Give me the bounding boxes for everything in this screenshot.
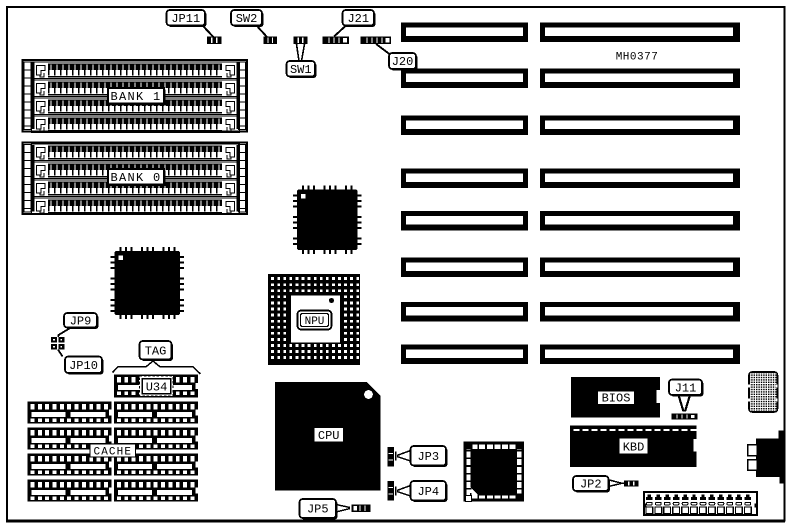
svg-text:SW2: SW2 — [236, 12, 258, 26]
svg-text:CPU: CPU — [318, 429, 340, 443]
svg-text:JP11: JP11 — [171, 12, 200, 26]
svg-text:BANK 0: BANK 0 — [110, 171, 161, 185]
svg-text:J11: J11 — [675, 381, 697, 395]
svg-text:CACHE: CACHE — [94, 446, 133, 458]
svg-text:SW1: SW1 — [290, 63, 312, 77]
svg-text:JP3: JP3 — [417, 450, 439, 464]
svg-text:JP4: JP4 — [417, 485, 439, 499]
svg-text:J21: J21 — [347, 12, 369, 26]
svg-text:J20: J20 — [392, 55, 414, 69]
svg-text:U34: U34 — [146, 381, 168, 395]
svg-text:TAG: TAG — [145, 344, 167, 358]
svg-text:MH0377: MH0377 — [616, 52, 659, 64]
svg-text:JP2: JP2 — [580, 478, 602, 492]
svg-text:NPU: NPU — [305, 316, 325, 328]
svg-text:BANK 1: BANK 1 — [110, 90, 161, 104]
svg-text:JP5: JP5 — [307, 503, 329, 517]
svg-text:JP10: JP10 — [69, 359, 98, 373]
svg-text:JP9: JP9 — [70, 314, 92, 328]
svg-text:BIOS: BIOS — [602, 392, 631, 406]
svg-text:KBD: KBD — [623, 441, 645, 455]
